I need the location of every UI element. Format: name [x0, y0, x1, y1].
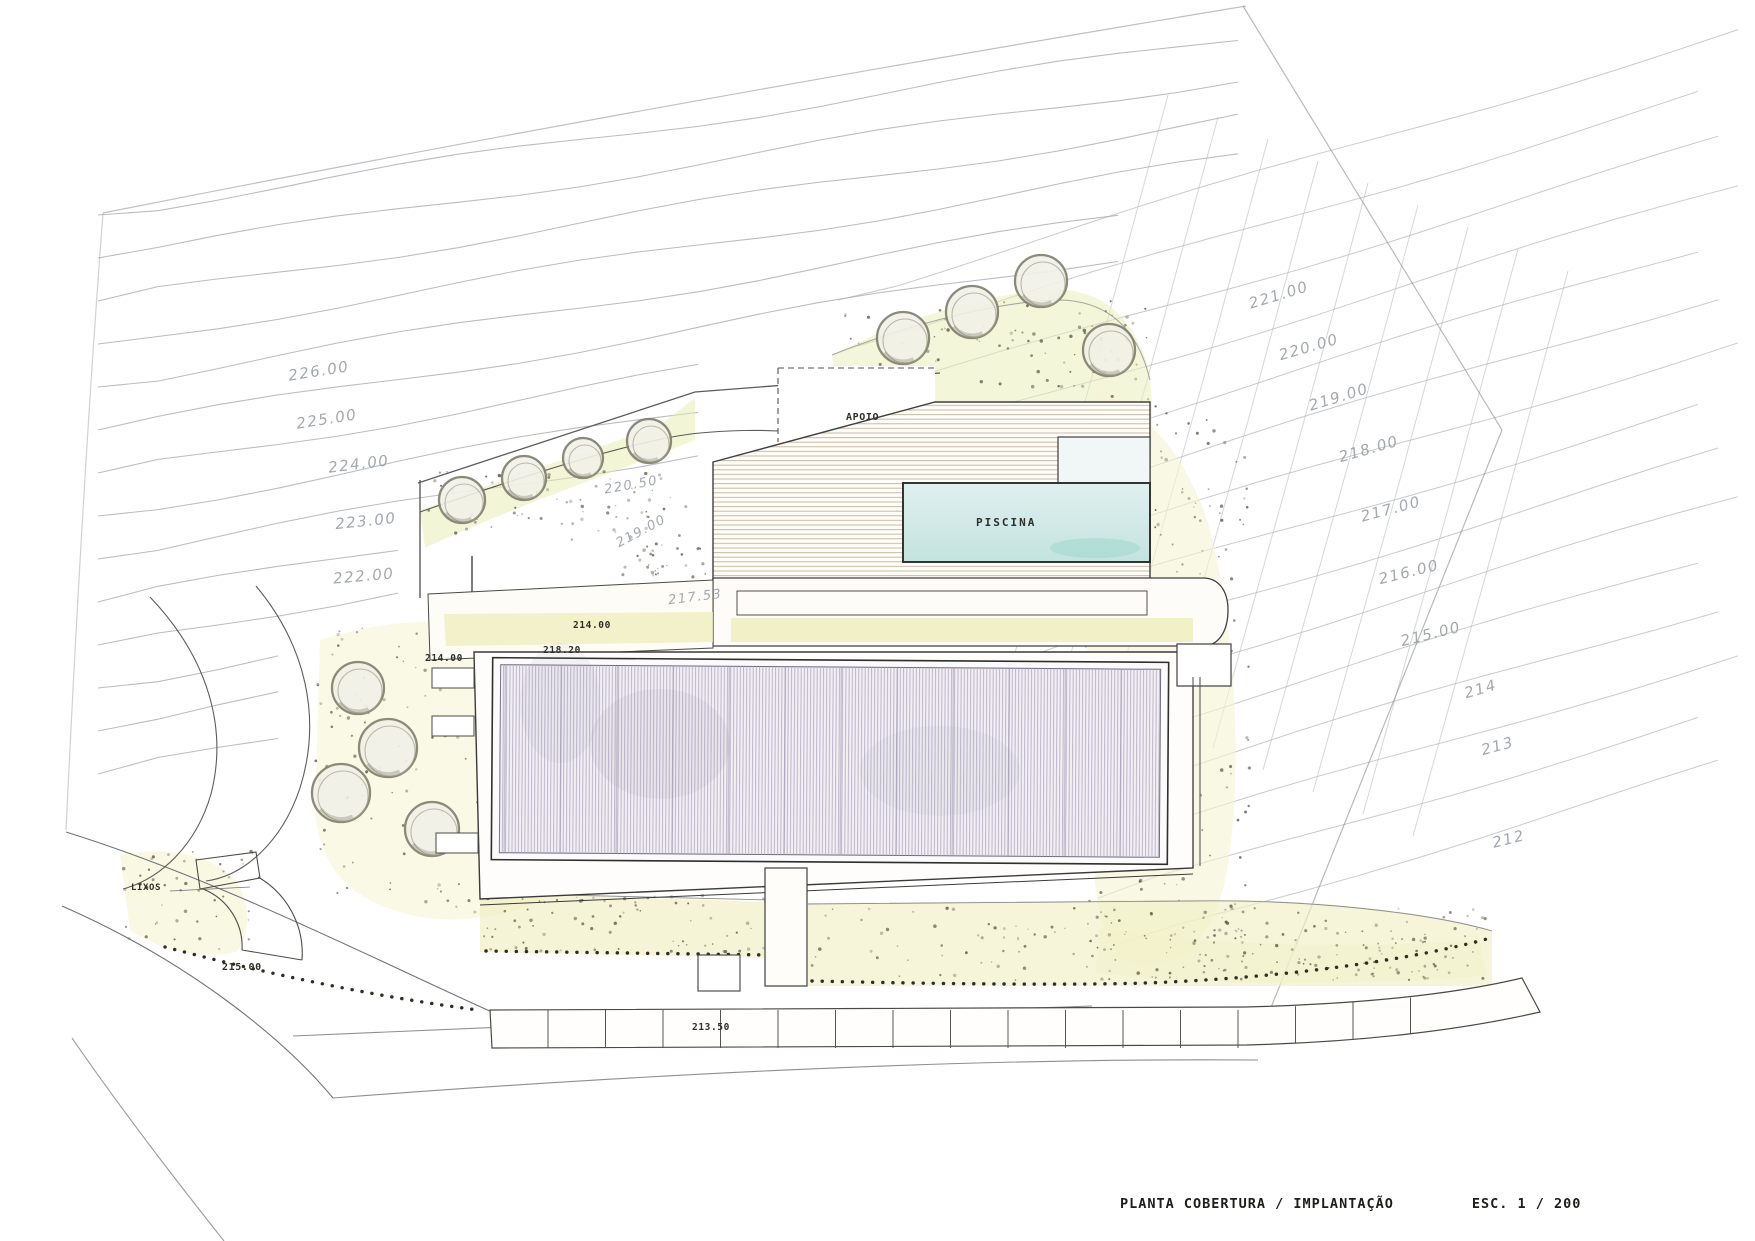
east-protrusion	[1177, 644, 1231, 686]
pool-label: PISCINA	[976, 516, 1036, 529]
spot-elevation-label: 214.00	[425, 653, 463, 664]
parking-strip	[490, 978, 1540, 1048]
spot-elevation-label: 218.20	[543, 645, 581, 656]
spot-elevation-label: 213.50	[692, 1022, 730, 1033]
spot-elevation-label: 215.00	[222, 962, 262, 973]
south-step	[698, 955, 740, 991]
south-path	[765, 868, 807, 986]
title-block: PLANTA COBERTURA / IMPLANTAÇÃO ESC. 1 / …	[1120, 1196, 1581, 1212]
apoio-label: APOIO	[846, 412, 879, 423]
drawing-scale: ESC. 1 / 200	[1472, 1196, 1582, 1212]
pool-water-shade	[1050, 538, 1140, 558]
site-plan-page: 226.00 225.00 224.00 223.00 222.00 221.0…	[0, 0, 1755, 1241]
drawing-title: PLANTA COBERTURA / IMPLANTAÇÃO	[1120, 1196, 1394, 1212]
lixos-label: LIXOS	[131, 883, 161, 893]
spot-elevation-label: 214.00	[573, 620, 611, 631]
spa-box	[1058, 437, 1150, 483]
walkway-gravel	[731, 618, 1193, 642]
main-roof	[491, 643, 1168, 865]
site-plan-drawing	[0, 0, 1755, 1241]
